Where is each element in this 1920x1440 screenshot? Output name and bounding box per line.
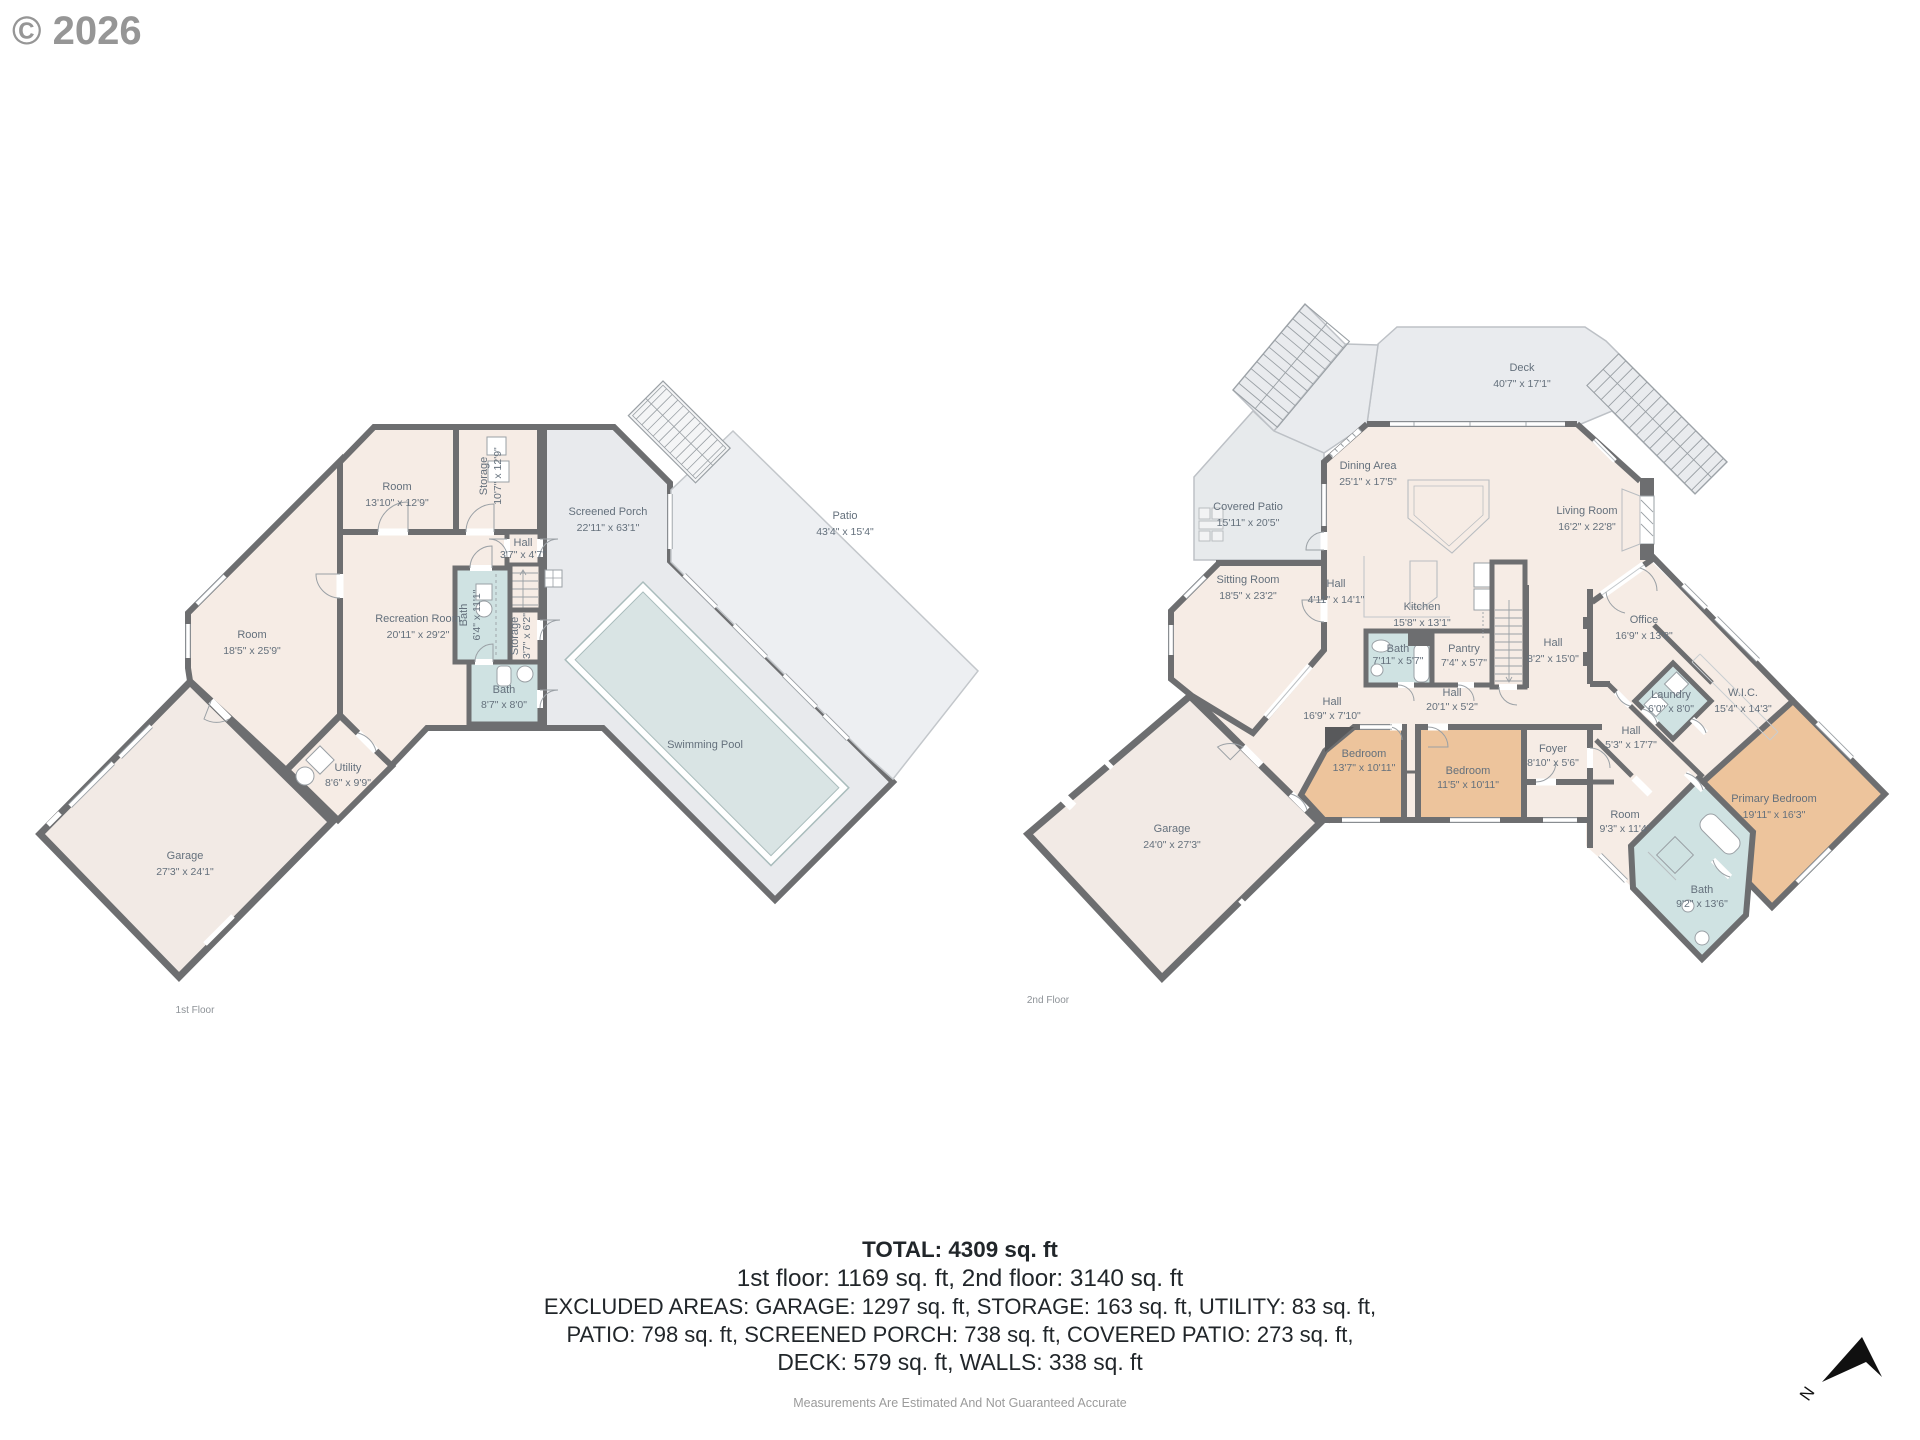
svg-text:Bath: Bath xyxy=(1387,643,1410,655)
svg-text:Dining Area: Dining Area xyxy=(1340,460,1398,472)
svg-text:2nd Floor: 2nd Floor xyxy=(1027,995,1070,1006)
svg-text:5'3" x 17'7": 5'3" x 17'7" xyxy=(1605,739,1657,751)
svg-text:13'10" x 12'9": 13'10" x 12'9" xyxy=(365,497,429,509)
svg-text:27'3" x 24'1": 27'3" x 24'1" xyxy=(156,866,214,878)
svg-text:8'6" x 9'9": 8'6" x 9'9" xyxy=(325,777,371,789)
svg-text:16'9" x 7'10": 16'9" x 7'10" xyxy=(1303,710,1361,722)
svg-text:Hall: Hall xyxy=(1323,696,1342,708)
svg-text:7'11" x 5'7": 7'11" x 5'7" xyxy=(1373,655,1424,667)
svg-text:Living Room: Living Room xyxy=(1556,505,1617,517)
svg-text:11'5" x 10'11": 11'5" x 10'11" xyxy=(1437,779,1499,791)
svg-text:Covered Patio: Covered Patio xyxy=(1213,501,1283,513)
svg-text:Hall: Hall xyxy=(514,537,533,549)
svg-text:6'4" x 11'1": 6'4" x 11'1" xyxy=(471,589,483,640)
svg-text:24'0" x 27'3": 24'0" x 27'3" xyxy=(1143,839,1201,851)
svg-text:18'5" x 23'2": 18'5" x 23'2" xyxy=(1219,590,1277,602)
svg-text:Bedroom: Bedroom xyxy=(1342,748,1387,760)
svg-text:1st Floor: 1st Floor xyxy=(176,1005,216,1016)
svg-text:Swimming Pool: Swimming Pool xyxy=(667,739,743,751)
svg-text:8'10" x 5'6": 8'10" x 5'6" xyxy=(1527,757,1579,769)
svg-text:Foyer: Foyer xyxy=(1539,743,1567,755)
svg-text:Deck: Deck xyxy=(1509,362,1535,374)
svg-text:1st floor: 1169 sq. ft, 2nd fl: 1st floor: 1169 sq. ft, 2nd floor: 3140 … xyxy=(737,1265,1184,1292)
svg-text:9'2" x 13'6": 9'2" x 13'6" xyxy=(1676,898,1728,910)
svg-text:Storage: Storage xyxy=(478,457,490,496)
svg-text:20'11" x 29'2": 20'11" x 29'2" xyxy=(387,629,450,641)
svg-text:Hall: Hall xyxy=(1622,725,1641,737)
svg-text:22'11" x 63'1": 22'11" x 63'1" xyxy=(577,522,640,534)
svg-text:4'11" x 14'1": 4'11" x 14'1" xyxy=(1308,594,1365,606)
svg-text:16'2" x 22'8": 16'2" x 22'8" xyxy=(1558,521,1616,533)
svg-text:20'1" x 5'2": 20'1" x 5'2" xyxy=(1426,701,1478,713)
svg-text:10'7" x 12'9": 10'7" x 12'9" xyxy=(492,447,504,505)
svg-text:18'5" x 25'9": 18'5" x 25'9" xyxy=(223,645,281,657)
svg-text:Patio: Patio xyxy=(832,510,857,522)
svg-text:Bath: Bath xyxy=(1691,884,1714,896)
svg-text:© 2026: © 2026 xyxy=(12,9,142,53)
svg-text:3'7" x 6'2": 3'7" x 6'2" xyxy=(521,613,533,659)
svg-text:15'11" x 20'5": 15'11" x 20'5" xyxy=(1217,517,1280,529)
svg-text:Kitchen: Kitchen xyxy=(1404,601,1441,613)
svg-text:Bedroom: Bedroom xyxy=(1446,765,1491,777)
svg-text:Storage: Storage xyxy=(509,617,521,656)
svg-text:6'0" x 8'0": 6'0" x 8'0" xyxy=(1648,703,1694,715)
svg-text:8'2" x 15'0": 8'2" x 15'0" xyxy=(1527,653,1579,665)
svg-text:Measurements Are Estimated And: Measurements Are Estimated And Not Guara… xyxy=(793,1396,1127,1410)
svg-text:Utility: Utility xyxy=(335,762,362,774)
svg-text:TOTAL: 4309 sq. ft: TOTAL: 4309 sq. ft xyxy=(862,1237,1058,1262)
svg-text:19'11" x 16'3": 19'11" x 16'3" xyxy=(1743,809,1806,821)
svg-text:EXCLUDED AREAS: GARAGE: 1297 s: EXCLUDED AREAS: GARAGE: 1297 sq. ft, STO… xyxy=(544,1294,1376,1319)
svg-text:Room: Room xyxy=(1610,809,1639,821)
svg-text:Pantry: Pantry xyxy=(1448,643,1480,655)
svg-text:16'9" x 13'8": 16'9" x 13'8" xyxy=(1615,630,1673,642)
svg-text:Garage: Garage xyxy=(1154,823,1191,835)
svg-text:Primary Bedroom: Primary Bedroom xyxy=(1731,793,1817,805)
svg-text:N: N xyxy=(1796,1383,1819,1404)
svg-text:Sitting Room: Sitting Room xyxy=(1217,574,1280,586)
svg-text:PATIO: 798 sq. ft, SCREENED PO: PATIO: 798 sq. ft, SCREENED PORCH: 738 s… xyxy=(567,1322,1354,1347)
svg-text:9'3" x 11'4": 9'3" x 11'4" xyxy=(1600,823,1651,835)
svg-text:8'7" x 8'0": 8'7" x 8'0" xyxy=(481,699,527,711)
svg-text:Hall: Hall xyxy=(1443,687,1462,699)
svg-text:Office: Office xyxy=(1630,614,1659,626)
svg-text:25'1" x 17'5": 25'1" x 17'5" xyxy=(1339,476,1397,488)
svg-text:Bath: Bath xyxy=(493,684,516,696)
svg-text:DECK: 579 sq. ft, WALLS: 338 s: DECK: 579 sq. ft, WALLS: 338 sq. ft xyxy=(777,1349,1143,1375)
svg-text:43'4" x 15'4": 43'4" x 15'4" xyxy=(816,526,874,538)
svg-text:Room: Room xyxy=(382,481,411,493)
svg-text:7'4" x 5'7": 7'4" x 5'7" xyxy=(1441,657,1487,669)
svg-text:Hall: Hall xyxy=(1327,578,1346,590)
svg-text:Garage: Garage xyxy=(167,850,204,862)
svg-text:Screened Porch: Screened Porch xyxy=(569,506,648,518)
svg-text:40'7" x 17'1": 40'7" x 17'1" xyxy=(1493,378,1551,390)
svg-text:Laundry: Laundry xyxy=(1651,689,1691,701)
svg-text:Recreation Room: Recreation Room xyxy=(375,613,461,625)
svg-text:13'7" x 10'11": 13'7" x 10'11" xyxy=(1333,762,1396,774)
svg-text:15'8" x 13'1": 15'8" x 13'1" xyxy=(1393,617,1451,629)
svg-text:W.I.C.: W.I.C. xyxy=(1728,687,1758,699)
svg-text:15'4" x 14'3": 15'4" x 14'3" xyxy=(1714,703,1772,715)
svg-text:3'7" x 4'7": 3'7" x 4'7" xyxy=(500,549,546,561)
svg-text:Room: Room xyxy=(237,629,266,641)
svg-text:Hall: Hall xyxy=(1544,637,1563,649)
